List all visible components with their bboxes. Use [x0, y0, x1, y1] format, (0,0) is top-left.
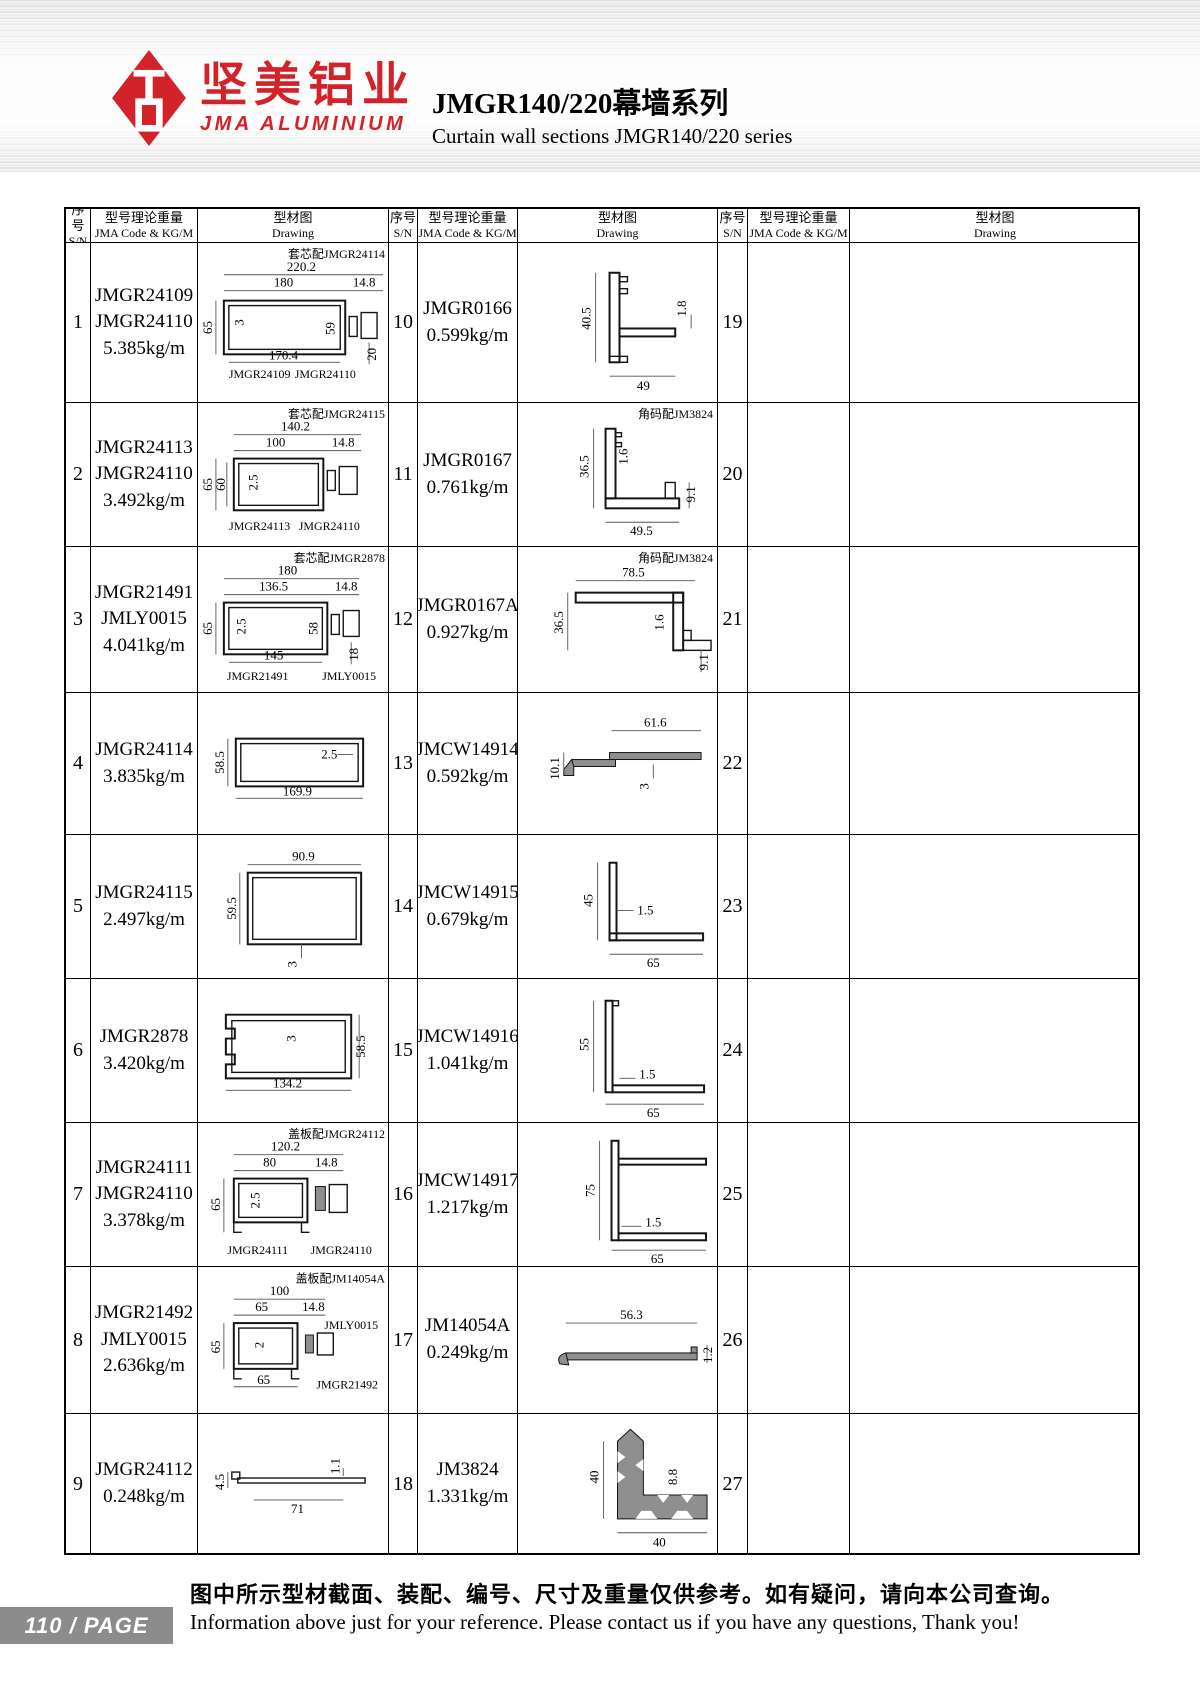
svg-text:3: 3: [232, 319, 247, 325]
svg-text:盖板配JMGR24112: 盖板配JMGR24112: [288, 1127, 385, 1141]
svg-text:14.8: 14.8: [332, 435, 355, 450]
svg-text:65: 65: [208, 1341, 223, 1354]
profile-drawing: 4.5 1.1 71: [198, 1414, 388, 1554]
svg-text:JMGR24113: JMGR24113: [229, 519, 290, 533]
drawing-cell: 盖板配JM14054A 100 65 14.8 2 65 65 JMLY0015…: [198, 1267, 389, 1414]
svg-text:10.1: 10.1: [547, 757, 562, 780]
sn-cell: 2: [66, 403, 91, 547]
svg-text:JMGR21492: JMGR21492: [316, 1378, 378, 1392]
sn-cell: 24: [718, 979, 748, 1123]
code-cell: JMCW149161.041kg/m: [418, 979, 518, 1123]
svg-text:59.5: 59.5: [224, 897, 239, 920]
profile-drawing: 套芯配JMGR2878 180 136.5 14.8 65 2.5 58 145…: [198, 547, 388, 692]
profile-drawing: 56.3 1.2: [518, 1267, 717, 1413]
empty-code-cell: [748, 243, 850, 403]
drawing-cell: 58.5 2.5 169.9: [198, 693, 389, 835]
header-sn-2: 序号S/N: [389, 209, 418, 243]
svg-text:140.2: 140.2: [281, 419, 310, 434]
sn-cell: 16: [389, 1123, 418, 1267]
profile-drawing: 40 8.8 40: [518, 1414, 717, 1554]
logo-english-name: JMA ALUMINIUM: [200, 113, 416, 136]
svg-text:78.5: 78.5: [622, 565, 645, 580]
code-cell: JMGR24113JMGR241103.492kg/m: [91, 403, 198, 547]
svg-text:59: 59: [322, 322, 337, 335]
svg-text:4.5: 4.5: [212, 1474, 227, 1490]
header-drawing-3: 型材图Drawing: [850, 209, 1140, 243]
series-title-chinese: JMGR140/220幕墙系列: [432, 80, 792, 122]
svg-text:JMGR24110: JMGR24110: [299, 519, 360, 533]
svg-text:136.5: 136.5: [259, 579, 288, 594]
svg-text:1.5: 1.5: [639, 1066, 655, 1081]
svg-text:2.5: 2.5: [246, 474, 261, 490]
profile-drawing: 套芯配JMGR24114 220.2 180 14.8 65 3 59 170.…: [198, 243, 388, 402]
svg-text:1.1: 1.1: [327, 1458, 342, 1474]
svg-text:100: 100: [270, 1283, 289, 1298]
empty-drawing-cell: [850, 403, 1140, 547]
drawing-cell: 75 1.5 65: [518, 1123, 718, 1267]
code-cell: JMGR28783.420kg/m: [91, 979, 198, 1123]
profile-drawing: 58.5 2.5 169.9: [198, 693, 388, 834]
series-title-english: Curtain wall sections JMGR140/220 series: [432, 124, 792, 149]
svg-text:75: 75: [583, 1184, 598, 1197]
svg-text:9.1: 9.1: [696, 654, 711, 670]
drawing-cell: 56.3 1.2: [518, 1267, 718, 1414]
svg-text:JMGR21491: JMGR21491: [227, 669, 289, 683]
page-title: JMGR140/220幕墙系列 Curtain wall sections JM…: [432, 80, 792, 149]
svg-text:36.5: 36.5: [551, 611, 566, 634]
svg-text:49.5: 49.5: [630, 523, 653, 538]
svg-text:180: 180: [274, 275, 293, 290]
header-drawing-2: 型材图Drawing: [518, 209, 718, 243]
svg-text:14.8: 14.8: [315, 1155, 338, 1170]
profile-drawing: 40.5 1.8 49: [518, 243, 717, 402]
profile-drawing: 套芯配JMGR24115 140.2 100 14.8 65 60 2.5 JM…: [198, 403, 388, 546]
empty-drawing-cell: [850, 547, 1140, 693]
header-sn-3: 序号S/N: [718, 209, 748, 243]
code-cell: JMCW149150.679kg/m: [418, 835, 518, 979]
svg-text:145: 145: [264, 647, 283, 662]
sn-cell: 10: [389, 243, 418, 403]
empty-code-cell: [748, 1267, 850, 1414]
code-cell: JMGR21491JMLY00154.041kg/m: [91, 547, 198, 693]
svg-text:JMGR24111: JMGR24111: [227, 1243, 288, 1257]
svg-text:65: 65: [200, 321, 215, 334]
sn-cell: 1: [66, 243, 91, 403]
code-cell: JMCW149140.592kg/m: [418, 693, 518, 835]
svg-text:3: 3: [283, 1035, 298, 1041]
empty-code-cell: [748, 403, 850, 547]
sn-cell: 13: [389, 693, 418, 835]
drawing-cell: 套芯配JMGR24115 140.2 100 14.8 65 60 2.5 JM…: [198, 403, 389, 547]
empty-drawing-cell: [850, 1267, 1140, 1414]
profile-drawing: 盖板配JMGR24112 120.2 80 14.8 65 2.5 JMGR24…: [198, 1123, 388, 1266]
svg-text:71: 71: [291, 1501, 304, 1516]
empty-drawing-cell: [850, 693, 1140, 835]
svg-text:3: 3: [636, 783, 651, 789]
svg-text:2.5: 2.5: [321, 747, 337, 762]
empty-code-cell: [748, 979, 850, 1123]
empty-code-cell: [748, 835, 850, 979]
drawing-cell: 盖板配JMGR24112 120.2 80 14.8 65 2.5 JMGR24…: [198, 1123, 389, 1267]
header-code-3: 型号理论重量JMA Code & KG/M: [748, 209, 850, 243]
profile-drawing: 61.6 10.1 3: [518, 693, 717, 834]
drawing-cell: 90.9 59.5 3: [198, 835, 389, 979]
sn-cell: 20: [718, 403, 748, 547]
svg-text:65: 65: [651, 1251, 664, 1266]
svg-text:14.8: 14.8: [335, 579, 358, 594]
code-cell: JMGR241152.497kg/m: [91, 835, 198, 979]
svg-text:8.8: 8.8: [665, 1469, 680, 1485]
svg-text:60: 60: [213, 478, 228, 491]
sn-cell: 14: [389, 835, 418, 979]
svg-text:58.5: 58.5: [212, 751, 227, 774]
svg-text:1.5: 1.5: [637, 902, 653, 917]
empty-code-cell: [748, 547, 850, 693]
svg-text:65: 65: [208, 1198, 223, 1211]
code-cell: JM14054A0.249kg/m: [418, 1267, 518, 1414]
drawing-cell: 角码配JM3824 36.5 1.6 9.1 49.5: [518, 403, 718, 547]
svg-text:1.2: 1.2: [700, 1347, 715, 1363]
company-logo: 坚美铝业 JMA ALUMINIUM: [112, 50, 416, 146]
sn-cell: 9: [66, 1414, 91, 1554]
footer-note-chinese: 图中所示型材截面、装配、编号、尺寸及重量仅供参考。如有疑问，请向本公司查询。: [190, 1577, 1064, 1609]
sn-cell: 12: [389, 547, 418, 693]
profile-drawing: 3 58.5 134.2: [198, 979, 388, 1122]
svg-text:1.6: 1.6: [615, 448, 630, 465]
svg-text:1.8: 1.8: [674, 300, 689, 316]
code-cell: JMGR24109JMGR241105.385kg/m: [91, 243, 198, 403]
svg-text:JMGR24110: JMGR24110: [295, 367, 356, 381]
svg-text:65: 65: [200, 622, 215, 635]
empty-drawing-cell: [850, 1414, 1140, 1554]
profiles-table: 序号S/N 型号理论重量JMA Code & KG/M 型材图Drawing 序…: [64, 207, 1140, 1555]
svg-text:JMLY0015: JMLY0015: [322, 669, 376, 683]
svg-text:36.5: 36.5: [577, 455, 592, 478]
svg-text:14.8: 14.8: [353, 275, 376, 290]
page-number-badge: 110 / PAGE: [0, 1607, 173, 1644]
svg-text:1.6: 1.6: [651, 614, 666, 631]
sn-cell: 11: [389, 403, 418, 547]
profile-drawing: 55 1.5 65: [518, 979, 717, 1122]
svg-text:134.2: 134.2: [273, 1075, 302, 1090]
code-cell: JMGR241143.835kg/m: [91, 693, 198, 835]
svg-text:169.9: 169.9: [283, 783, 312, 798]
sn-cell: 18: [389, 1414, 418, 1554]
svg-text:120.2: 120.2: [271, 1139, 300, 1154]
svg-text:58.5: 58.5: [353, 1035, 368, 1058]
code-cell: JMGR01660.599kg/m: [418, 243, 518, 403]
sn-cell: 5: [66, 835, 91, 979]
profile-drawing: 角码配JM3824 78.5 36.5 1.6 9.1: [518, 547, 717, 692]
drawing-cell: 3 58.5 134.2: [198, 979, 389, 1123]
sn-cell: 26: [718, 1267, 748, 1414]
svg-text:20: 20: [364, 348, 379, 361]
sn-cell: 6: [66, 979, 91, 1123]
sn-cell: 23: [718, 835, 748, 979]
svg-text:45: 45: [581, 894, 596, 907]
empty-drawing-cell: [850, 243, 1140, 403]
svg-text:2.5: 2.5: [234, 618, 249, 634]
code-cell: JMGR01670.761kg/m: [418, 403, 518, 547]
drawing-cell: 4.5 1.1 71: [198, 1414, 389, 1554]
code-cell: JMGR0167A0.927kg/m: [418, 547, 518, 693]
svg-text:14.8: 14.8: [302, 1299, 325, 1314]
sn-cell: 22: [718, 693, 748, 835]
header-code-1: 型号理论重量JMA Code & KG/M: [91, 209, 198, 243]
svg-text:58: 58: [305, 622, 320, 635]
sn-cell: 7: [66, 1123, 91, 1267]
empty-drawing-cell: [850, 979, 1140, 1123]
drawing-cell: 套芯配JMGR2878 180 136.5 14.8 65 2.5 58 145…: [198, 547, 389, 693]
code-cell: JMGR24111JMGR241103.378kg/m: [91, 1123, 198, 1267]
drawing-cell: 55 1.5 65: [518, 979, 718, 1123]
svg-text:100: 100: [266, 435, 285, 450]
svg-text:80: 80: [263, 1155, 276, 1170]
empty-drawing-cell: [850, 835, 1140, 979]
profile-drawing: 75 1.5 65: [518, 1123, 717, 1266]
svg-text:65: 65: [647, 1105, 660, 1120]
empty-code-cell: [748, 1123, 850, 1267]
svg-text:盖板配JM14054A: 盖板配JM14054A: [296, 1271, 386, 1285]
svg-text:9.1: 9.1: [683, 486, 698, 502]
svg-text:2.5: 2.5: [248, 1192, 263, 1208]
code-cell: JMGR21492JMLY00152.636kg/m: [91, 1267, 198, 1414]
svg-text:49: 49: [637, 378, 650, 393]
svg-text:65: 65: [647, 955, 660, 970]
svg-text:角码配JM3824: 角码配JM3824: [638, 407, 713, 421]
sn-cell: 15: [389, 979, 418, 1123]
sn-cell: 21: [718, 547, 748, 693]
svg-text:1.5: 1.5: [645, 1214, 661, 1229]
svg-text:JMLY0015: JMLY0015: [324, 1318, 378, 1332]
svg-text:61.6: 61.6: [644, 715, 667, 730]
svg-text:40: 40: [587, 1471, 602, 1484]
sn-cell: 3: [66, 547, 91, 693]
svg-text:170.4: 170.4: [269, 347, 299, 362]
svg-text:220.2: 220.2: [287, 259, 316, 274]
profile-drawing: 角码配JM3824 36.5 1.6 9.1 49.5: [518, 403, 717, 546]
empty-drawing-cell: [850, 1123, 1140, 1267]
header-code-2: 型号理论重量JMA Code & KG/M: [418, 209, 518, 243]
drawing-cell: 45 1.5 65: [518, 835, 718, 979]
profile-drawing: 90.9 59.5 3: [198, 835, 388, 978]
sn-cell: 17: [389, 1267, 418, 1414]
footer-note-english: Information above just for your referenc…: [190, 1610, 1019, 1635]
code-cell: JM38241.331kg/m: [418, 1414, 518, 1554]
svg-text:40.5: 40.5: [579, 307, 594, 330]
svg-text:65: 65: [257, 1372, 270, 1387]
svg-text:3: 3: [284, 961, 299, 967]
sn-cell: 25: [718, 1123, 748, 1267]
svg-text:56.3: 56.3: [620, 1307, 643, 1322]
jma-diamond-logo-icon: [112, 50, 186, 146]
svg-text:65: 65: [255, 1299, 268, 1314]
sn-cell: 27: [718, 1414, 748, 1554]
svg-text:18: 18: [346, 648, 361, 661]
drawing-cell: 角码配JM3824 78.5 36.5 1.6 9.1: [518, 547, 718, 693]
drawing-cell: 40 8.8 40: [518, 1414, 718, 1554]
svg-text:JMGR24110: JMGR24110: [311, 1243, 372, 1257]
svg-text:2: 2: [252, 1342, 267, 1348]
header-sn-1: 序号S/N: [66, 209, 91, 243]
code-cell: JMGR241120.248kg/m: [91, 1414, 198, 1554]
drawing-cell: 40.5 1.8 49: [518, 243, 718, 403]
drawing-cell: 套芯配JMGR24114 220.2 180 14.8 65 3 59 170.…: [198, 243, 389, 403]
sn-cell: 4: [66, 693, 91, 835]
profile-drawing: 盖板配JM14054A 100 65 14.8 2 65 65 JMLY0015…: [198, 1267, 388, 1413]
profile-drawing: 45 1.5 65: [518, 835, 717, 978]
svg-text:角码配JM3824: 角码配JM3824: [638, 551, 713, 565]
svg-text:90.9: 90.9: [292, 849, 315, 864]
svg-text:55: 55: [577, 1038, 592, 1051]
empty-code-cell: [748, 1414, 850, 1554]
code-cell: JMCW149171.217kg/m: [418, 1123, 518, 1267]
page: 坚美铝业 JMA ALUMINIUM JMGR140/220幕墙系列 Curta…: [0, 0, 1200, 1697]
svg-text:套芯配JMGR2878: 套芯配JMGR2878: [294, 551, 385, 565]
sn-cell: 8: [66, 1267, 91, 1414]
svg-text:JMGR24109: JMGR24109: [229, 367, 291, 381]
sn-cell: 19: [718, 243, 748, 403]
empty-code-cell: [748, 693, 850, 835]
svg-text:40: 40: [653, 1535, 666, 1550]
drawing-cell: 61.6 10.1 3: [518, 693, 718, 835]
svg-text:180: 180: [278, 563, 297, 578]
logo-chinese-name: 坚美铝业: [200, 60, 416, 109]
header-drawing-1: 型材图Drawing: [198, 209, 389, 243]
